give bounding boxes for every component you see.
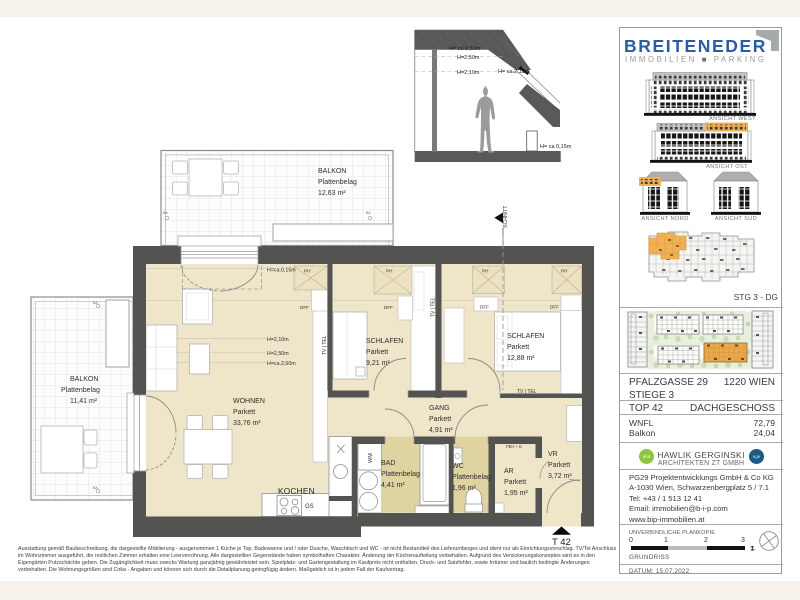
svg-text:PH: PH — [482, 269, 488, 274]
svg-text:H=2,50m: H=2,50m — [267, 351, 289, 357]
svg-text:AR: AR — [504, 468, 514, 475]
svg-text:Parkett: Parkett — [366, 349, 388, 356]
svg-text:H=ca.2,60m: H=ca.2,60m — [267, 361, 296, 367]
svg-text:11,41 m²: 11,41 m² — [70, 398, 98, 405]
svg-text:GANG: GANG — [429, 405, 450, 412]
svg-text:12,63 m²: 12,63 m² — [318, 190, 346, 197]
svg-text:Parkett: Parkett — [504, 479, 526, 486]
svg-text:GS: GS — [305, 504, 314, 510]
svg-text:BA: BA — [93, 486, 98, 490]
svg-text:PH: PH — [386, 269, 392, 274]
svg-text:H=2,50m: H=2,50m — [457, 55, 480, 61]
svg-text:PH: PH — [304, 269, 310, 274]
svg-text:33,76 m²: 33,76 m² — [233, 420, 261, 427]
svg-text:3,72 m²: 3,72 m² — [548, 473, 572, 480]
svg-text:BA: BA — [93, 301, 98, 305]
svg-text:Parkett: Parkett — [429, 416, 451, 423]
svg-text:12,88 m²: 12,88 m² — [507, 355, 535, 362]
svg-text:H=2,10m: H=2,10m — [267, 337, 289, 343]
svg-text:1,96 m²: 1,96 m² — [452, 485, 476, 492]
svg-text:Plattenbelag: Plattenbelag — [452, 474, 491, 481]
svg-text:BAD: BAD — [381, 460, 395, 467]
svg-text:WOHNEN: WOHNEN — [233, 398, 265, 405]
svg-text:Plattenbelag: Plattenbelag — [61, 387, 100, 394]
svg-text:9,21 m²: 9,21 m² — [366, 360, 390, 367]
svg-text:DFF: DFF — [300, 305, 309, 310]
svg-text:KOCHEN: KOCHEN — [278, 487, 315, 496]
svg-text:Parkett: Parkett — [548, 462, 570, 469]
svg-text:BALKON: BALKON — [318, 168, 346, 175]
svg-text:z: z — [749, 542, 756, 553]
svg-text:SCHLAFEN: SCHLAFEN — [366, 338, 403, 345]
svg-text:SCHNITT: SCHNITT — [503, 205, 509, 228]
svg-text:BA: BA — [163, 211, 168, 215]
svg-text:Plattenbelag: Plattenbelag — [381, 471, 420, 478]
svg-text:TV | TEL: TV | TEL — [322, 335, 328, 355]
svg-text:DFF: DFF — [550, 305, 559, 310]
svg-text:4,91 m²: 4,91 m² — [429, 427, 453, 434]
svg-text:WM: WM — [368, 453, 374, 463]
svg-text:Parkett: Parkett — [507, 344, 529, 351]
svg-text:FBH + E: FBH + E — [506, 444, 522, 449]
svg-text:H= ca 0,15m: H= ca 0,15m — [540, 144, 572, 150]
svg-text:SCHLAFEN: SCHLAFEN — [507, 333, 544, 340]
svg-text:DFF: DFF — [480, 305, 489, 310]
svg-text:Parkett: Parkett — [233, 409, 255, 416]
svg-text:DFF: DFF — [384, 305, 393, 310]
svg-text:1,95 m²: 1,95 m² — [504, 490, 528, 497]
svg-text:WC: WC — [452, 463, 464, 470]
svg-text:H=ca.0,15m: H=ca.0,15m — [267, 268, 296, 274]
svg-text:H=2,10m: H=2,10m — [457, 70, 480, 76]
svg-text:BALKON: BALKON — [70, 376, 98, 383]
svg-text:VR: VR — [548, 451, 558, 458]
svg-text:Plattenbelag: Plattenbelag — [318, 179, 357, 186]
svg-text:PH: PH — [561, 269, 567, 274]
svg-text:H= ca 2,50m: H= ca 2,50m — [449, 46, 481, 52]
svg-text:4,41 m²: 4,41 m² — [381, 482, 405, 489]
svg-text:H= ca.2,13m: H= ca.2,13m — [498, 69, 530, 75]
svg-text:BA: BA — [366, 211, 371, 215]
